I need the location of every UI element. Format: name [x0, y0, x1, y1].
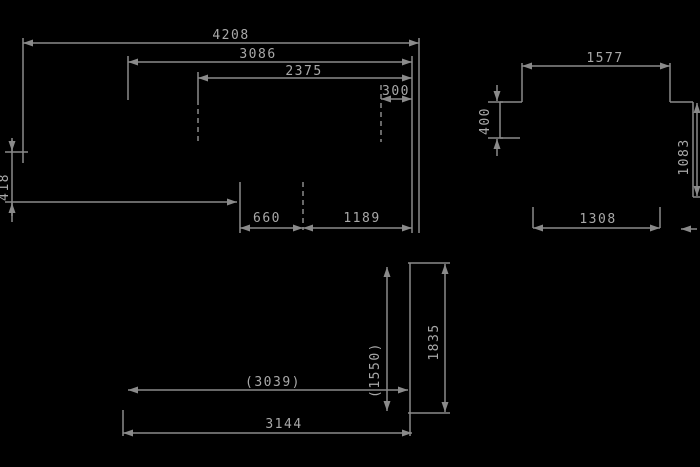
end-view-figure: 1577 400 1083 1308	[478, 51, 700, 229]
drawing-canvas: 4208 3086 2375 300 418 660 1189 1577 400…	[0, 0, 700, 467]
technical-drawing: 4208 3086 2375 300 418 660 1189 1577 400…	[0, 0, 700, 467]
dim-label-overall-length: 4208	[212, 28, 249, 43]
dim-label-inner-length: 2375	[285, 64, 322, 79]
dim-label-body-length: 3086	[239, 47, 276, 62]
side-view-figure: 4208 3086 2375 300 418 660 1189	[0, 28, 419, 233]
dim-label-rear-offset: 300	[382, 84, 410, 99]
dim-label-overall-height: 1835	[427, 323, 442, 360]
dim-label-overall-span: 3144	[265, 417, 302, 432]
dim-label-top-width: 1577	[586, 51, 623, 66]
dim-label-axle-gap: 660	[253, 211, 281, 226]
dim-label-side-height: 1083	[677, 138, 692, 175]
dim-label-notch-height: 400	[478, 107, 493, 135]
dim-label-inner-height: (1550)	[368, 342, 383, 398]
underside-view-figure: (3039) 3144 (1550) 1835	[123, 263, 450, 436]
dim-label-bottom-width: 1308	[579, 212, 616, 227]
dim-label-front-height: 418	[0, 173, 12, 201]
dim-label-rear-gap: 1189	[343, 211, 380, 226]
dim-label-inner-span: (3039)	[245, 375, 301, 390]
